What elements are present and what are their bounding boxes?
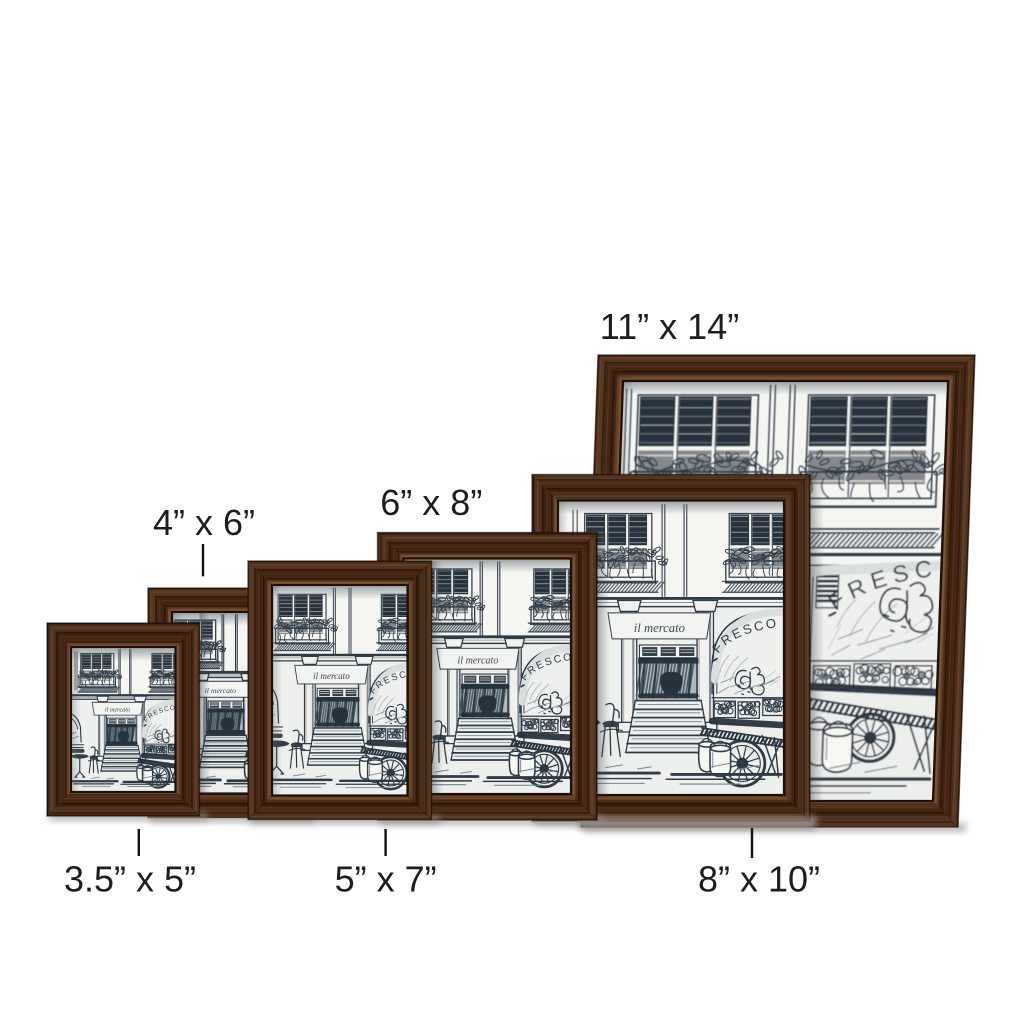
- svg-text:5” x 7”: 5” x 7”: [335, 859, 437, 900]
- svg-text:8” x 10”: 8” x 10”: [698, 859, 820, 900]
- svg-text:11” x 14”: 11” x 14”: [600, 306, 739, 347]
- svg-text:3.5” x 5”: 3.5” x 5”: [64, 859, 196, 900]
- svg-text:4” x 6”: 4” x 6”: [153, 502, 255, 543]
- svg-text:6” x 8”: 6” x 8”: [380, 482, 482, 523]
